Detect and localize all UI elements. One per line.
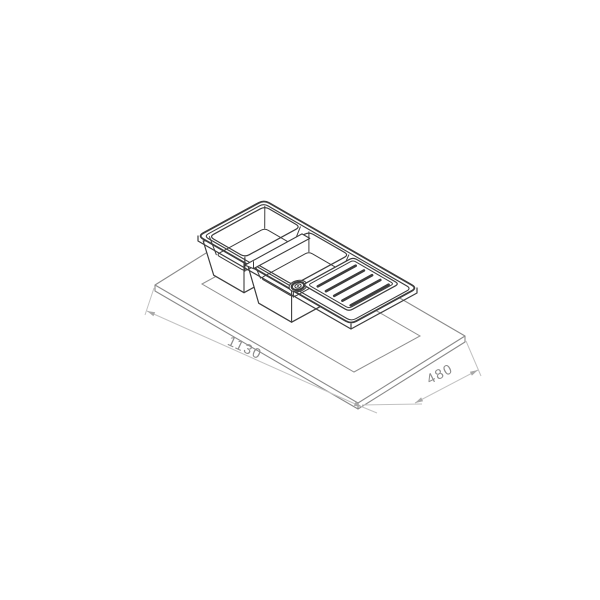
dimension-depth-arrow-right [470,370,478,376]
dimension-depth-arrow-left [415,397,423,403]
sink-technical-drawing: 1130 480 [0,0,600,600]
dimension-depth-label: 480 [424,360,456,387]
dimension-length-arrow-left [147,311,155,316]
drawing-canvas: 1130 480 [0,0,600,600]
